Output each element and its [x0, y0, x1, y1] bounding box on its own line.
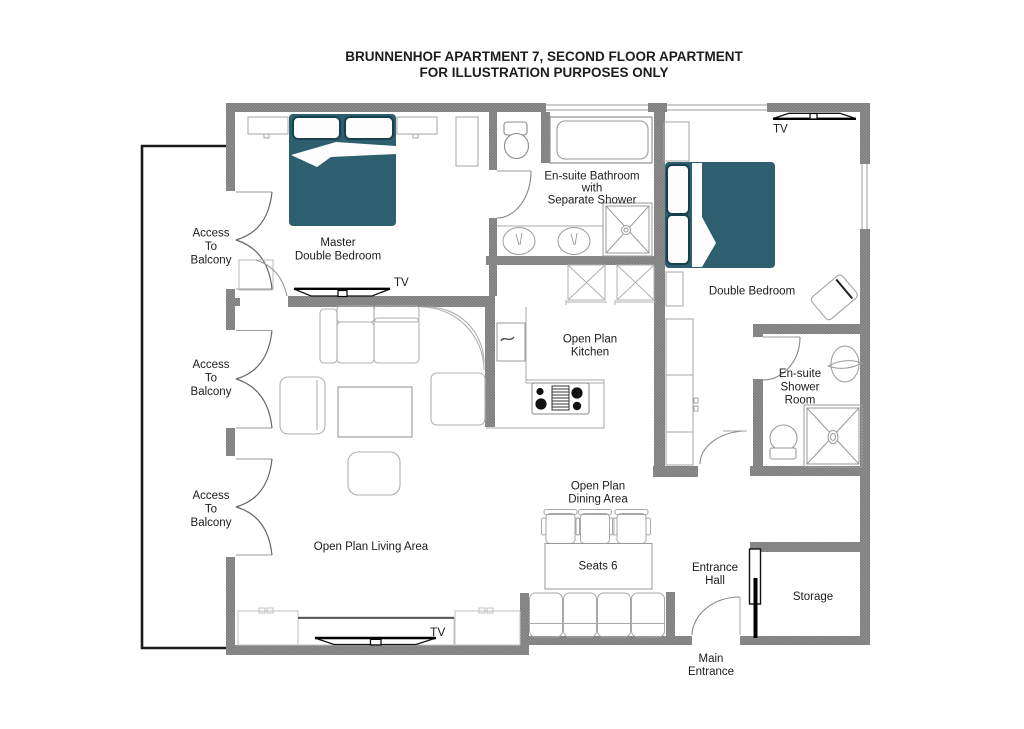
svg-text:Master: Master — [320, 237, 355, 249]
svg-text:To: To — [205, 373, 217, 385]
svg-text:Shower: Shower — [781, 382, 820, 394]
svg-text:Kitchen: Kitchen — [571, 347, 609, 359]
svg-text:with: with — [581, 183, 602, 195]
svg-text:BRUNNENHOF APARTMENT 7, SECOND: BRUNNENHOF APARTMENT 7, SECOND FLOOR APA… — [345, 49, 743, 64]
svg-text:Double Bedroom: Double Bedroom — [709, 286, 795, 298]
svg-text:TV: TV — [773, 124, 788, 136]
svg-text:Entrance: Entrance — [688, 666, 734, 678]
svg-text:Access: Access — [192, 359, 229, 371]
svg-text:Room: Room — [785, 395, 816, 407]
svg-text:Access: Access — [192, 490, 229, 502]
svg-text:Double Bedroom: Double Bedroom — [295, 251, 381, 263]
svg-text:Balcony: Balcony — [191, 386, 232, 398]
svg-text:Open Plan: Open Plan — [571, 481, 625, 493]
svg-text:Access: Access — [192, 228, 229, 240]
svg-text:Balcony: Balcony — [191, 255, 232, 267]
svg-text:TV: TV — [394, 277, 409, 289]
svg-text:Hall: Hall — [705, 575, 725, 587]
svg-text:Open Plan: Open Plan — [563, 334, 617, 346]
svg-text:Seats 6: Seats 6 — [579, 561, 618, 573]
svg-text:TV: TV — [430, 625, 445, 639]
svg-text:Open Plan Living Area: Open Plan Living Area — [314, 541, 429, 553]
svg-text:Dining Area: Dining Area — [568, 494, 628, 506]
svg-text:Balcony: Balcony — [191, 517, 232, 529]
svg-text:To: To — [205, 241, 217, 253]
svg-text:En-suite Bathroom: En-suite Bathroom — [544, 171, 639, 183]
svg-text:Main: Main — [699, 653, 724, 665]
svg-text:En-suite: En-suite — [779, 368, 821, 380]
svg-text:FOR ILLUSTRATION PURPOSES ONLY: FOR ILLUSTRATION PURPOSES ONLY — [419, 65, 668, 80]
svg-text:To: To — [205, 504, 217, 516]
svg-text:Separate Shower: Separate Shower — [548, 195, 637, 207]
svg-text:Entrance: Entrance — [692, 562, 738, 574]
svg-text:Storage: Storage — [793, 591, 833, 603]
